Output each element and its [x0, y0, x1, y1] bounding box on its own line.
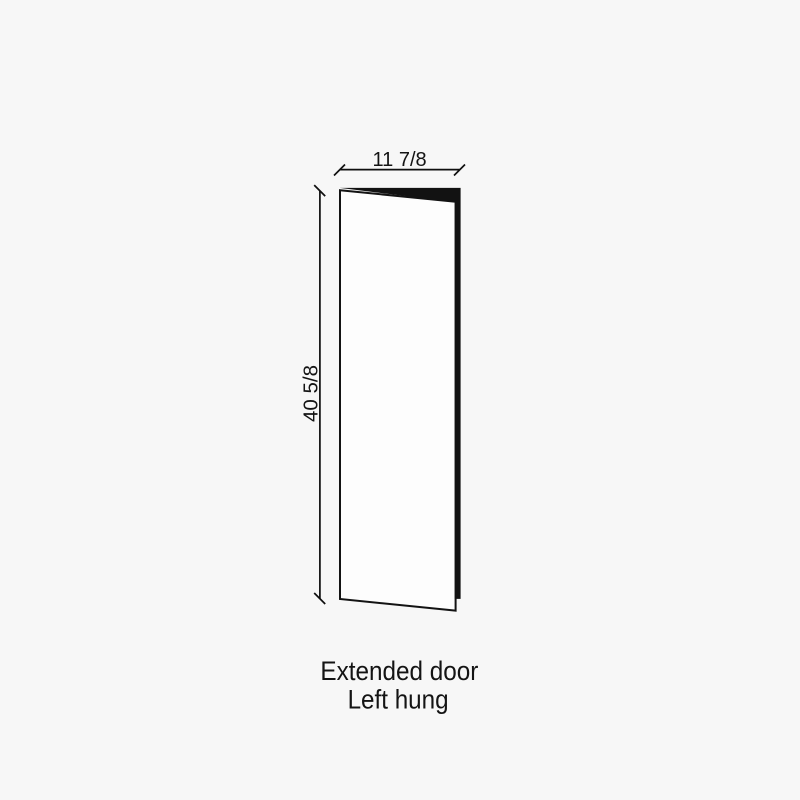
svg-text:Extended door: Extended door	[320, 656, 478, 686]
svg-text:11 7/8: 11 7/8	[373, 149, 427, 171]
svg-text:40 5/8: 40 5/8	[300, 365, 322, 422]
svg-text:Left hung: Left hung	[348, 685, 449, 715]
